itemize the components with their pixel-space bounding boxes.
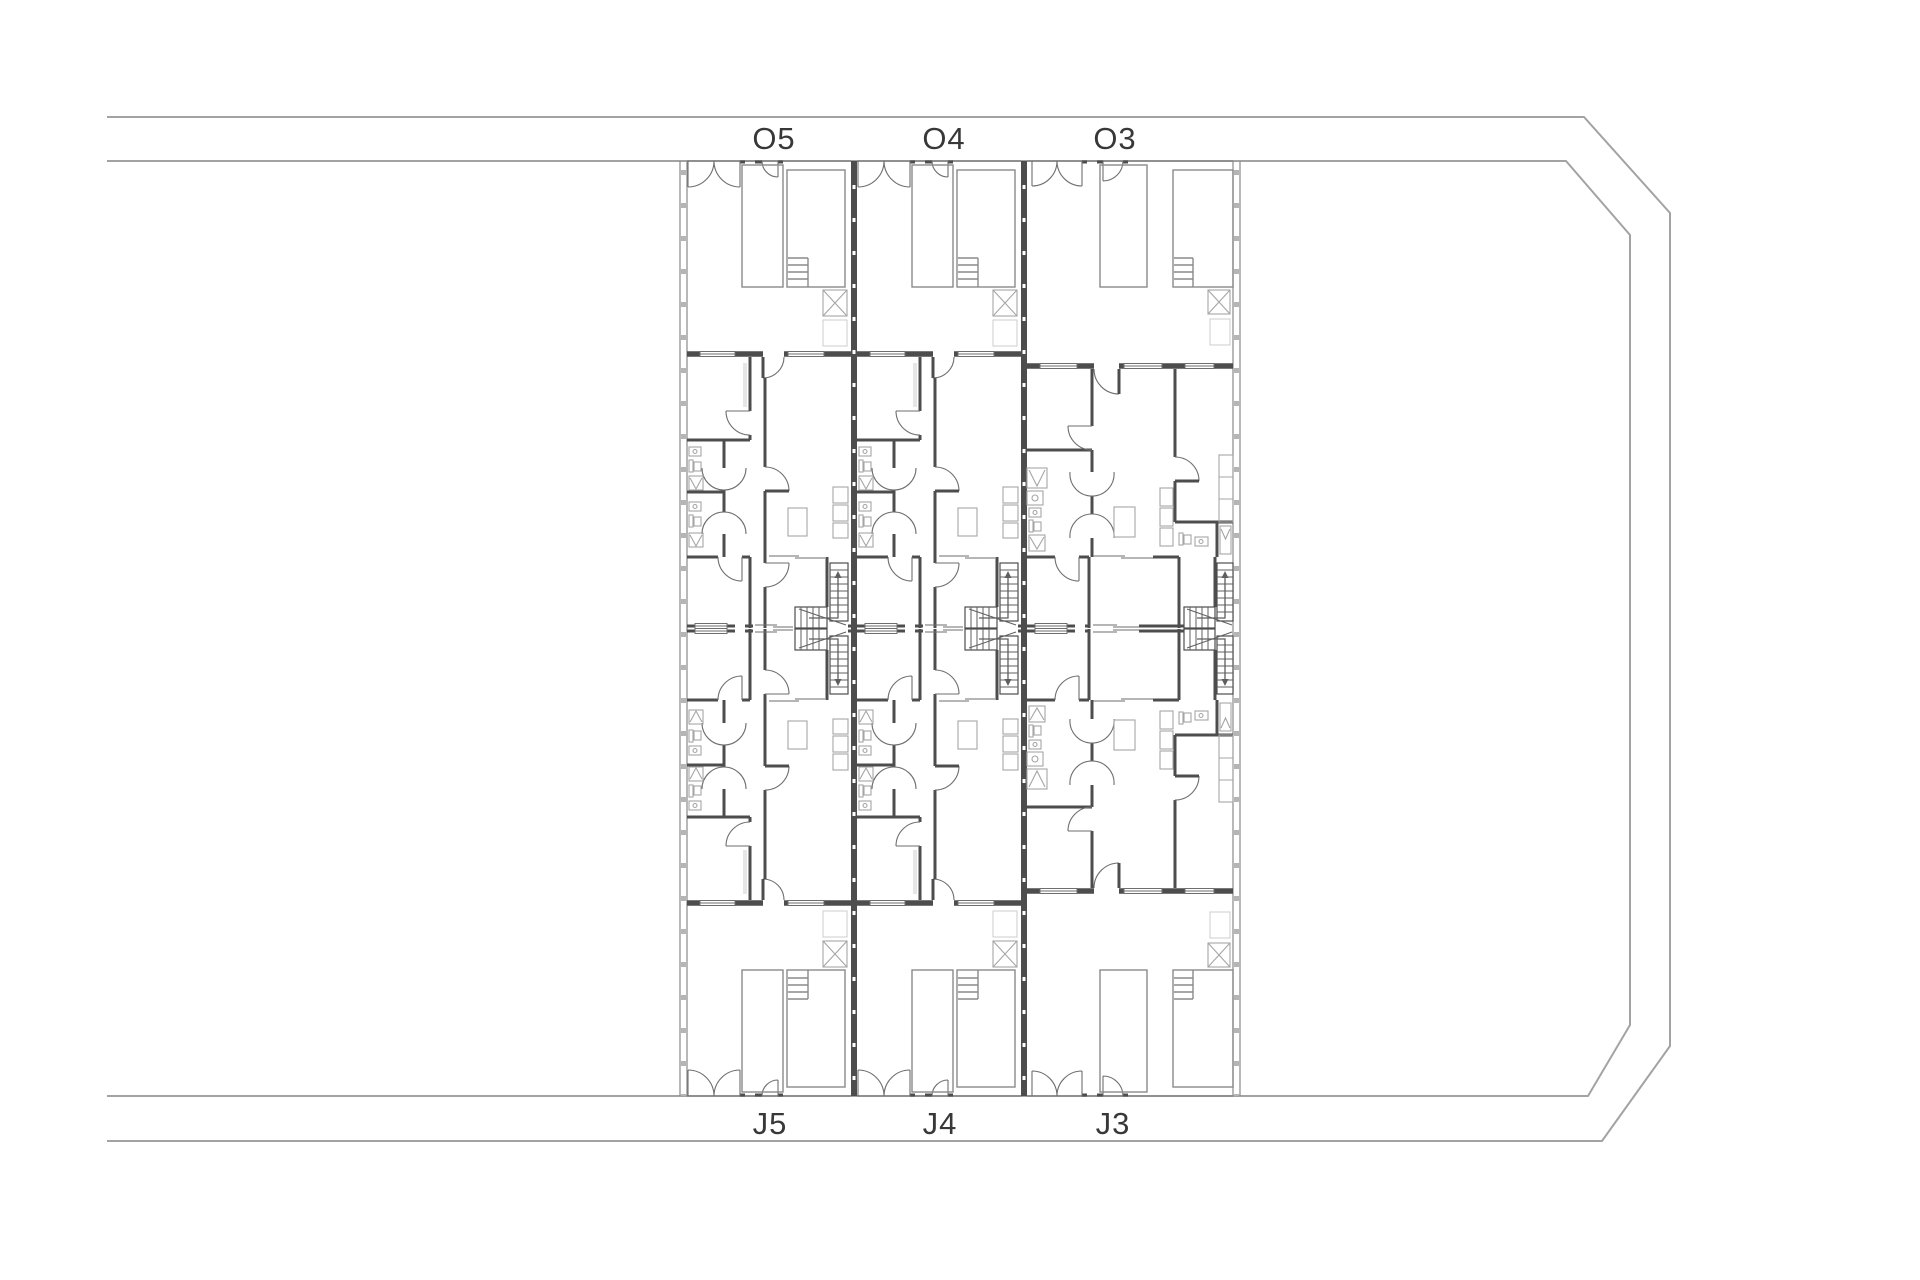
- block-wall-left: [680, 161, 687, 1096]
- unit-plan-j5: [687, 629, 851, 1097]
- unit-plans: [687, 161, 1233, 1096]
- unit-label-o5: O5: [752, 121, 795, 156]
- unit-plan-o3: [1027, 161, 1233, 629]
- floor-plan-page: O5 O4 O3 J5 J4 J3: [0, 0, 1920, 1280]
- unit-label-o4: O4: [922, 121, 965, 156]
- unit-plan-j3: [1027, 629, 1233, 1097]
- unit-label-j4: J4: [923, 1106, 958, 1141]
- site-plan-canvas: O5 O4 O3 J5 J4 J3: [0, 0, 1920, 1280]
- unit-plan-o4: [857, 161, 1021, 629]
- unit-label-j3: J3: [1096, 1106, 1131, 1141]
- block-walls: [680, 161, 1240, 1096]
- block-wall-right: [1233, 161, 1240, 1096]
- unit-label-j5: J5: [753, 1106, 788, 1141]
- unit-label-o3: O3: [1093, 121, 1136, 156]
- unit-plan-j4: [857, 629, 1021, 1097]
- unit-plan-o5: [687, 161, 851, 629]
